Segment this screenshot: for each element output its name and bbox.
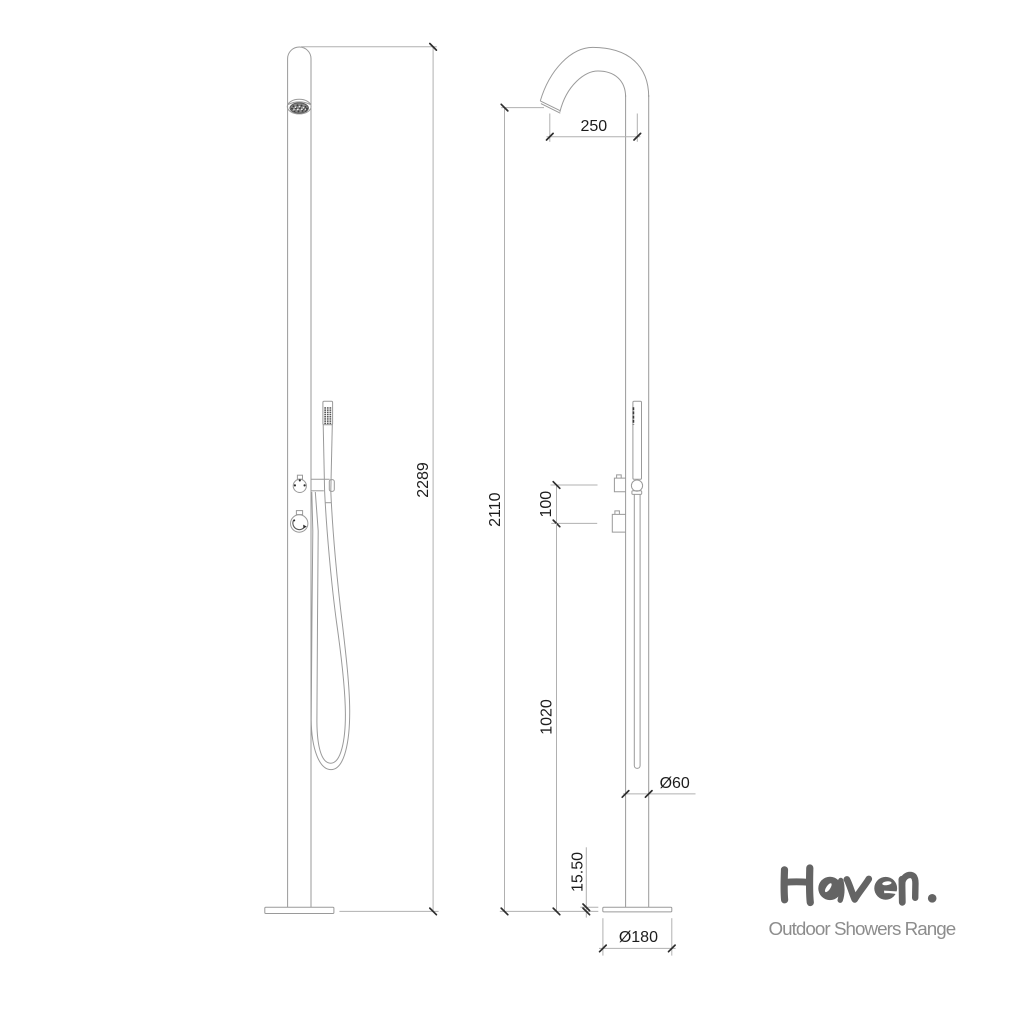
svg-text:100: 100 (538, 491, 555, 518)
svg-text:Ø180: Ø180 (619, 929, 658, 946)
svg-text:Ø60: Ø60 (660, 775, 690, 792)
svg-text:2110: 2110 (487, 492, 504, 527)
svg-text:15.50: 15.50 (569, 852, 586, 892)
svg-text:2289: 2289 (415, 462, 432, 498)
svg-text:250: 250 (580, 118, 607, 135)
svg-text:Outdoor Showers Range: Outdoor Showers Range (769, 918, 956, 939)
svg-text:1020: 1020 (539, 699, 556, 735)
